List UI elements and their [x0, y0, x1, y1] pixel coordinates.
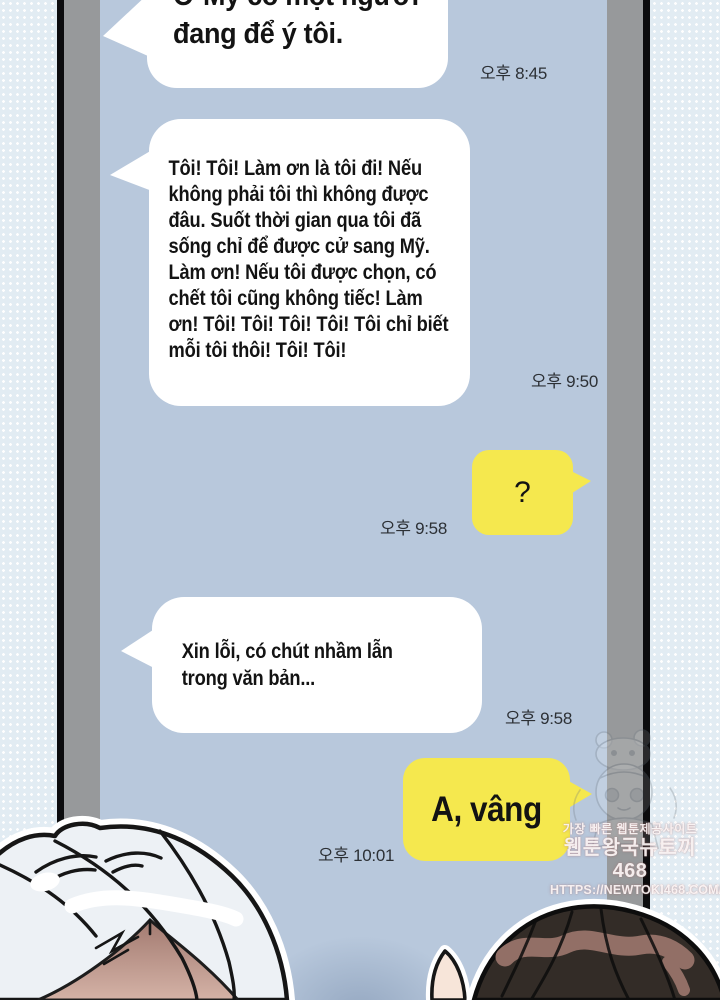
watermark-tagline: 가장 빠른 웹툰제공사이트: [550, 823, 710, 837]
message-text: ?: [514, 476, 531, 510]
timestamp-1: 오후 8:45: [480, 59, 547, 84]
webtoon-panel: Ở Mỹ có một ngườiđang để ý tôi. 오후 8:45 …: [0, 0, 720, 1000]
message-text: Tôi! Tôi! Làm ơn là tôi đi! Nếukhông phả…: [149, 119, 422, 363]
message-bubble-incoming-3[interactable]: Xin lỗi, có chút nhầm lẫntrong văn bản..…: [152, 597, 482, 733]
watermark-sitename: 웹툰왕국뉴토끼468: [550, 837, 710, 883]
message-text: A, vâng: [431, 790, 542, 830]
characters-shadow: [240, 925, 480, 1000]
timestamp-5: 오후 10:01: [318, 841, 394, 866]
message-text: Ở Mỹ có một ngườiđang để ý tôi.: [147, 0, 427, 53]
phone-frame-left: [57, 0, 64, 1000]
timestamp-3: 오후 9:58: [380, 514, 447, 539]
message-bubble-outgoing-1[interactable]: ?: [472, 450, 573, 535]
message-bubble-incoming-2[interactable]: Tôi! Tôi! Làm ơn là tôi đi! Nếukhông phả…: [149, 119, 470, 406]
message-bubble-incoming-1[interactable]: Ở Mỹ có một ngườiđang để ý tôi.: [147, 0, 448, 88]
timestamp-2: 오후 9:50: [531, 367, 598, 392]
message-bubble-outgoing-2[interactable]: A, vâng: [403, 758, 570, 861]
timestamp-4: 오후 9:58: [505, 704, 572, 729]
watermark-url: HTTPS://NEWTOKI468.COM/: [550, 883, 710, 897]
message-text: Xin lỗi, có chút nhầm lẫntrong văn bản..…: [152, 597, 433, 692]
phone-bezel-left: [64, 0, 100, 1000]
site-watermark: 가장 빠른 웹툰제공사이트 웹툰왕국뉴토끼468 HTTPS://NEWTOKI…: [550, 823, 710, 897]
